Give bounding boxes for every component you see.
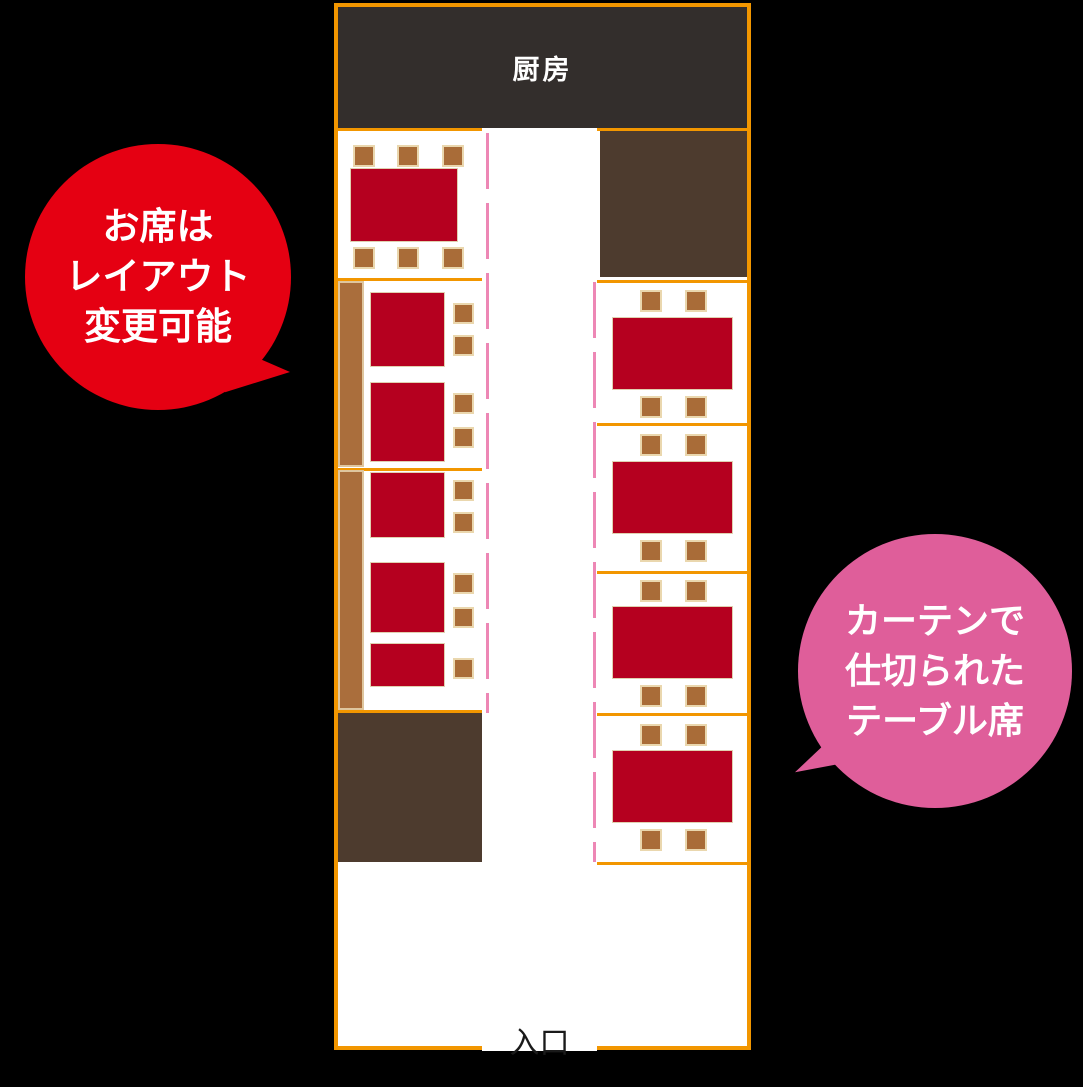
chair: [453, 658, 474, 679]
chair: [453, 335, 474, 356]
callout-line: カーテンで: [845, 596, 1025, 646]
chair: [453, 512, 474, 533]
chair: [353, 247, 375, 269]
chair: [685, 829, 707, 851]
chair: [442, 247, 464, 269]
divider-line: [597, 713, 747, 716]
chair: [685, 540, 707, 562]
chair: [453, 573, 474, 594]
divider-line: [597, 423, 747, 426]
callout-line: お席は: [66, 202, 251, 252]
floor-plan: 厨房: [334, 3, 751, 1050]
table-curtained: [612, 606, 733, 679]
table: [370, 472, 445, 538]
table: [370, 562, 445, 633]
seating-map-canvas: 厨房: [0, 0, 1083, 1087]
chair: [442, 145, 464, 167]
divider-line: [597, 280, 747, 283]
table: [370, 292, 445, 367]
chair: [685, 290, 707, 312]
chair: [685, 396, 707, 418]
divider-line: [597, 862, 747, 865]
callout-line: テーブル席: [845, 696, 1025, 746]
chair: [640, 580, 662, 602]
dark-area-right: [600, 131, 747, 277]
chair: [685, 580, 707, 602]
table: [370, 382, 445, 462]
chair: [453, 393, 474, 414]
curtain-callout-text: カーテンで 仕切られた テーブル席: [845, 596, 1025, 746]
table-small: [370, 643, 445, 687]
chair: [453, 480, 474, 501]
callout-line: 仕切られた: [845, 646, 1025, 696]
chair: [453, 607, 474, 628]
chair: [640, 685, 662, 707]
chair: [640, 724, 662, 746]
bench-seat: [338, 470, 364, 710]
chair: [685, 724, 707, 746]
bench-seat: [338, 281, 364, 467]
chair: [685, 434, 707, 456]
kitchen-area: 厨房: [338, 7, 747, 128]
layout-callout-bubble: お席は レイアウト 変更可能: [25, 144, 291, 410]
chair: [397, 145, 419, 167]
divider-line: [597, 571, 747, 574]
chair: [640, 829, 662, 851]
chair: [353, 145, 375, 167]
chair: [640, 540, 662, 562]
dark-area-left: [338, 713, 482, 862]
callout-line: 変更可能: [66, 302, 251, 352]
chair: [685, 685, 707, 707]
callout-line: レイアウト: [66, 252, 251, 302]
table-curtained: [612, 461, 733, 534]
table-six-seat: [350, 168, 458, 242]
chair: [453, 427, 474, 448]
chair: [640, 290, 662, 312]
kitchen-label: 厨房: [513, 48, 573, 87]
divider-line: [338, 128, 482, 131]
chair: [397, 247, 419, 269]
layout-callout-text: お席は レイアウト 変更可能: [66, 202, 251, 352]
chair: [640, 434, 662, 456]
entrance-label: 入口: [482, 1018, 597, 1062]
table-curtained: [612, 750, 733, 823]
curtain-line-right: [593, 282, 596, 862]
chair: [453, 303, 474, 324]
table-curtained: [612, 317, 733, 390]
curtain-callout-bubble: カーテンで 仕切られた テーブル席: [798, 534, 1072, 808]
curtain-line-left: [486, 133, 489, 713]
chair: [640, 396, 662, 418]
